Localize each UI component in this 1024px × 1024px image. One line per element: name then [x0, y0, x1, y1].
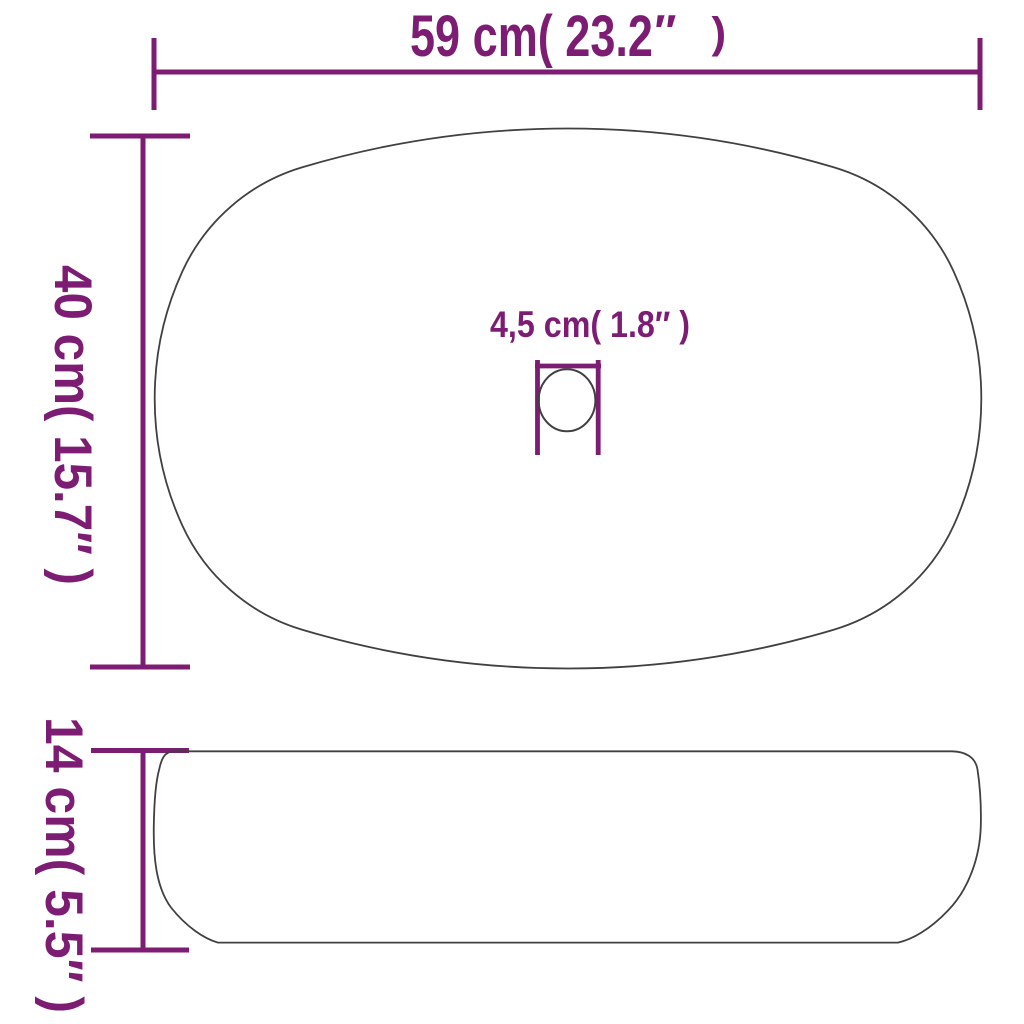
svg-text:14 cm( 5.5″ ): 14 cm( 5.5″ ) [34, 717, 93, 1013]
svg-text:″: ″ [654, 5, 676, 57]
svg-text:): ) [712, 9, 727, 58]
svg-text:4,5 cm( 1.8″ ): 4,5 cm( 1.8″ ) [490, 303, 690, 345]
svg-text:59 cm( 23.2: 59 cm( 23.2 [410, 4, 653, 69]
svg-text:40 cm( 15.7″ ): 40 cm( 15.7″ ) [43, 265, 102, 585]
